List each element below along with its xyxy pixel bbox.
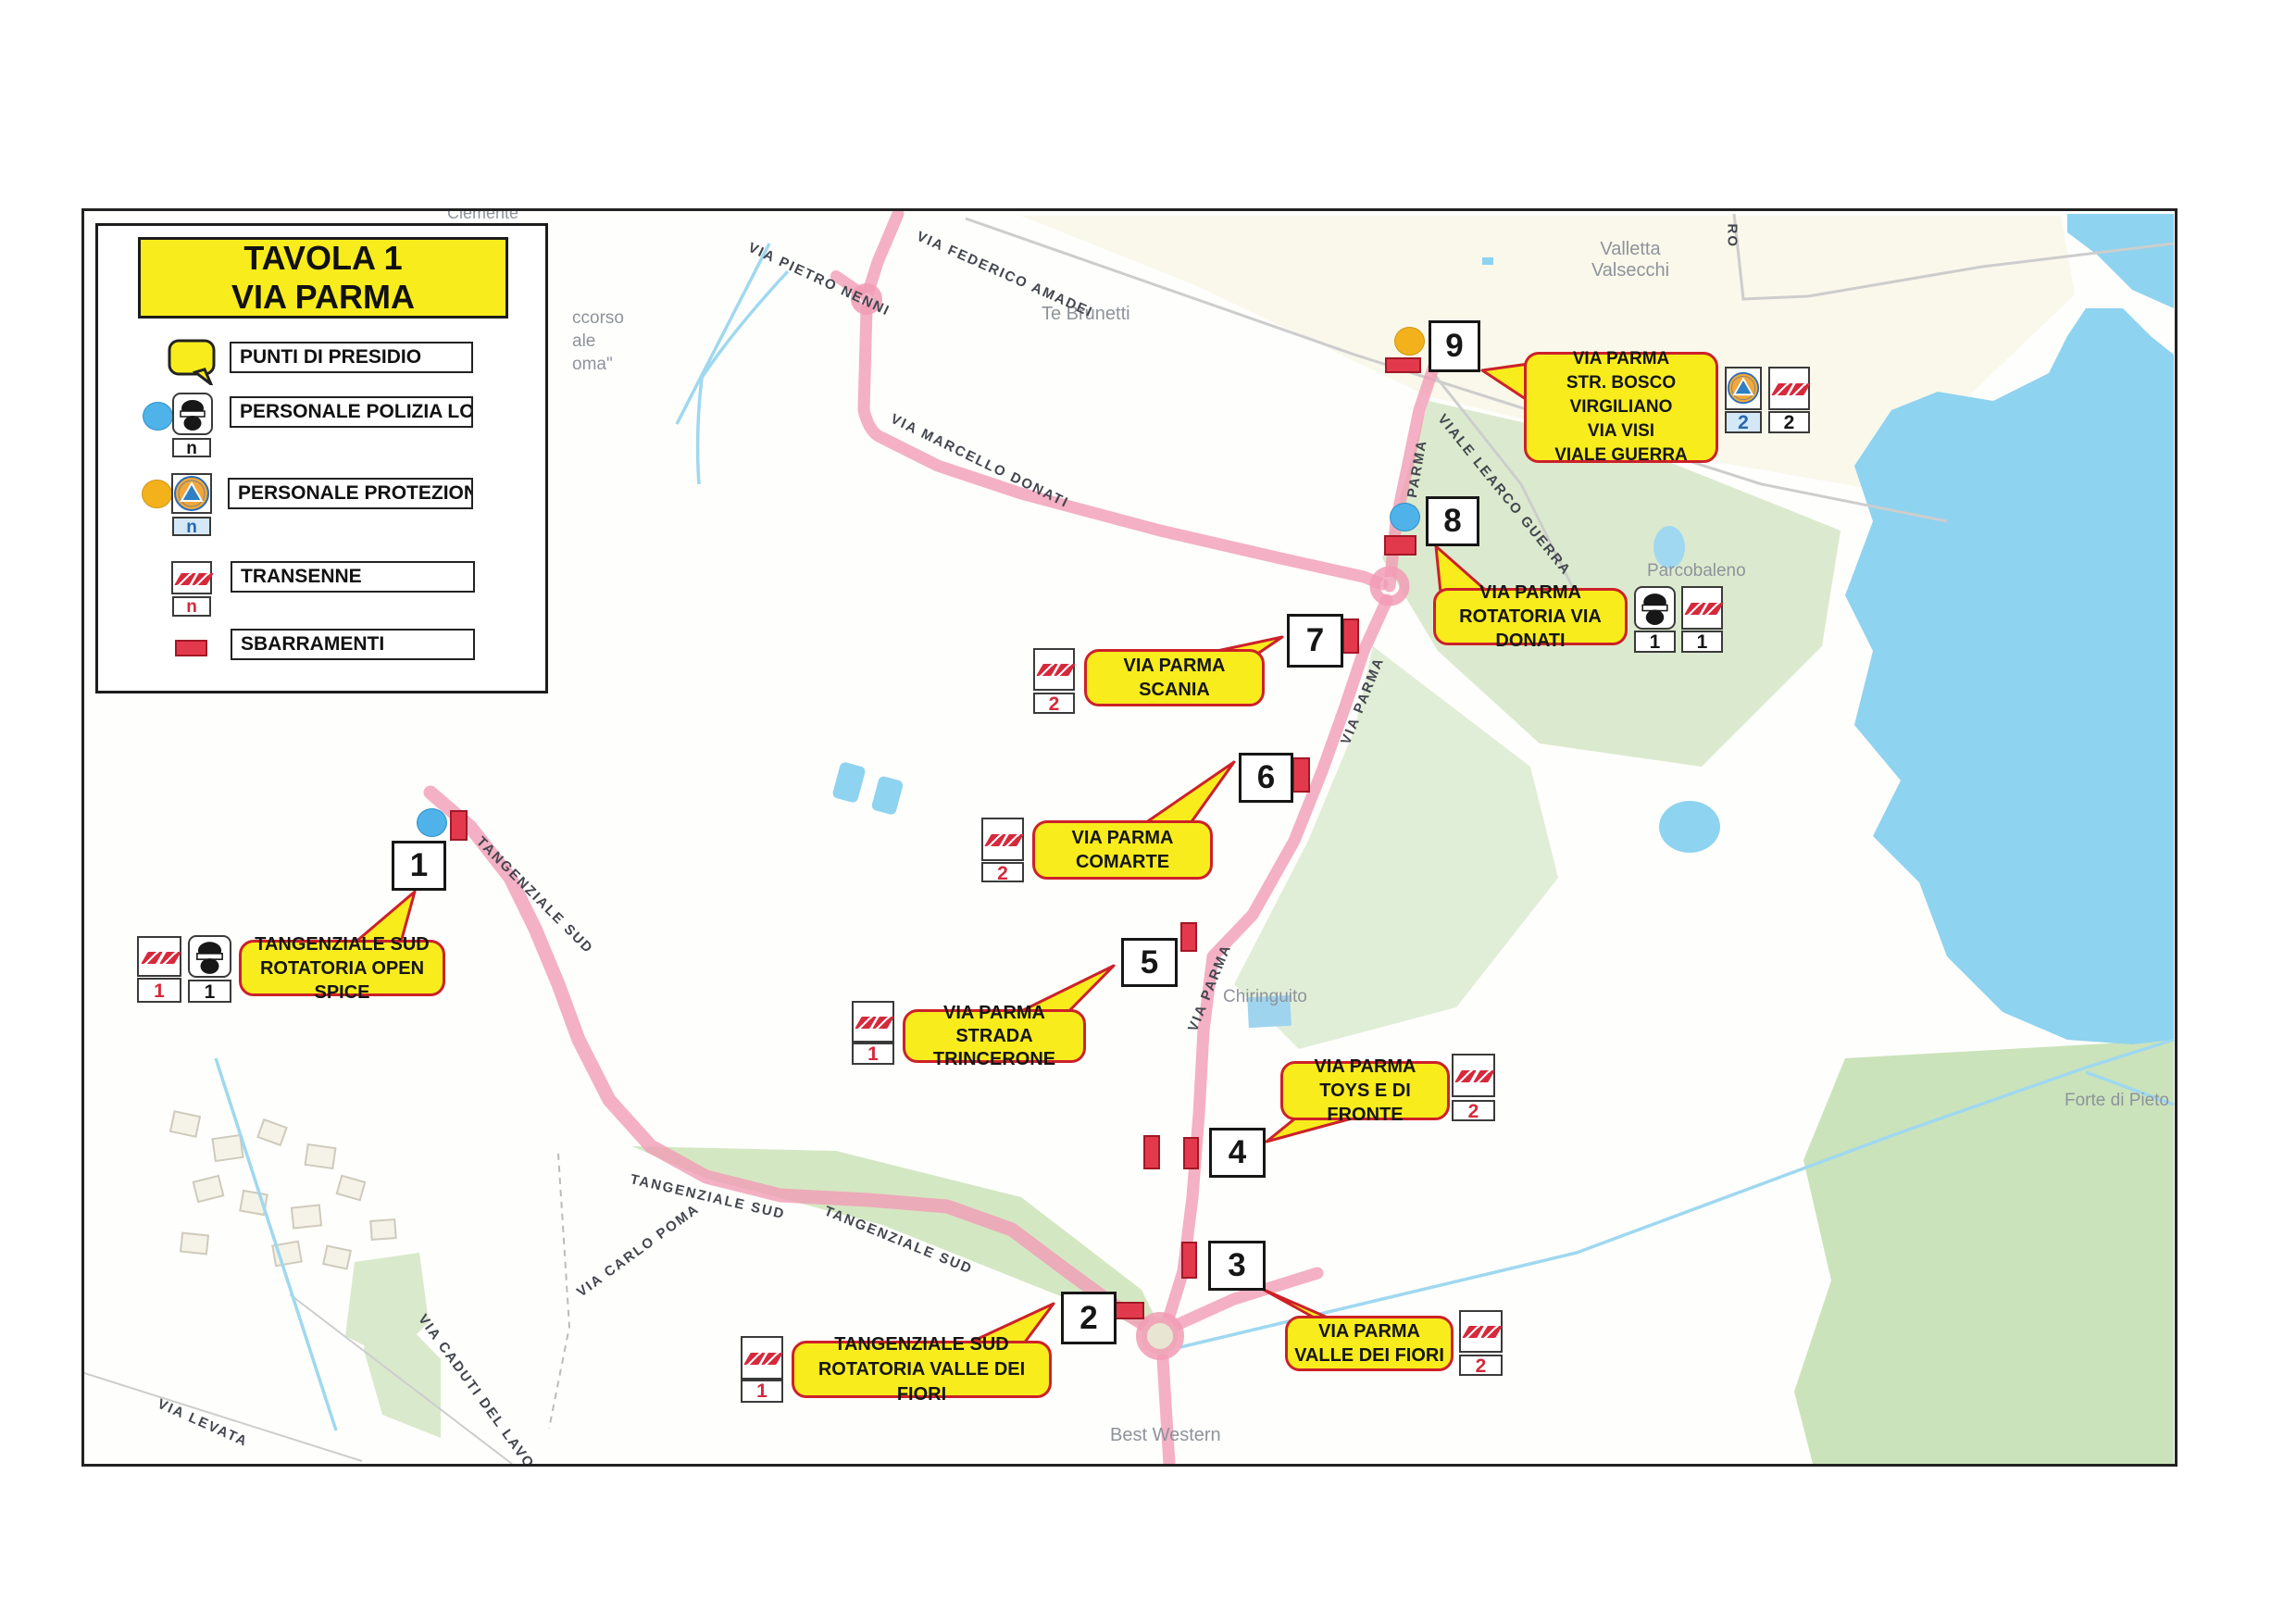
p6-callout: VIA PARMA COMARTE <box>1032 820 1213 880</box>
p7-transenne-icon <box>1033 648 1075 691</box>
p3-transenne-count: 2 <box>1459 1355 1503 1376</box>
p8-sbarramento-marker <box>1384 535 1416 556</box>
p1-callout: TANGENZIALE SUD ROTATORIA OPEN SPICE <box>239 940 445 996</box>
p7-line2: SCANIA <box>1092 678 1256 702</box>
pond-center-2 <box>871 775 905 816</box>
p8-polizia-marker <box>1390 503 1420 531</box>
p2-number-box: 2 <box>1061 1292 1117 1344</box>
place-label-best-western: Best Western <box>1110 1425 1221 1446</box>
p4-sbarramento-marker-1 <box>1143 1135 1160 1169</box>
boundary-dashed <box>549 1154 569 1429</box>
p4-number-box: 4 <box>1209 1128 1266 1178</box>
p1-polizia-marker <box>417 808 447 837</box>
p8-police-hat-icon <box>1634 586 1676 630</box>
p2-transenne-icon <box>741 1336 783 1380</box>
p8-line2: ROTATORIA VIA DONATI <box>1441 605 1619 653</box>
buildings-cluster <box>170 1111 396 1268</box>
p5-transenne-count: 1 <box>852 1043 894 1065</box>
p6-transenne-icon <box>981 818 1024 861</box>
p4-sbarramento-marker-2 <box>1183 1137 1199 1169</box>
p3-sbarramento-marker <box>1181 1242 1197 1279</box>
place-label-valletta-valsecchi: Valletta Valsecchi <box>1570 239 1691 281</box>
p4-line1: VIA PARMA <box>1289 1055 1441 1079</box>
p6-number-box: 6 <box>1239 753 1293 803</box>
p4-transenne-count: 2 <box>1452 1100 1495 1121</box>
p1-transenne-count: 1 <box>137 978 181 1003</box>
p1-police-hat-icon <box>188 935 231 978</box>
p7-sbarramento-marker <box>1342 618 1359 654</box>
p4-line2: TOYS E DI FRONTE <box>1289 1079 1441 1127</box>
p9-number-box: 9 <box>1429 320 1480 372</box>
partial-line-1: ccorso <box>572 306 624 330</box>
p7-line1: VIA PARMA <box>1092 654 1256 678</box>
p7-number-box: 7 <box>1287 614 1343 668</box>
protezione-count-placeholder: n <box>172 517 211 536</box>
p9-transenne-count: 2 <box>1768 411 1810 433</box>
place-label-chiringuito: Chiringuito <box>1223 987 1307 1007</box>
p8-number-box: 8 <box>1426 496 1479 546</box>
pond-small <box>1659 801 1720 853</box>
pond-center-1 <box>831 761 866 804</box>
legend-title-line2: VIA PARMA <box>231 278 415 317</box>
legend-label-sbarramenti: SBARRAMENTI <box>231 629 475 660</box>
p3-number-box: 3 <box>1208 1241 1266 1291</box>
p2-callout: TANGENZIALE SUD ROTATORIA VALLE DEI FIOR… <box>792 1341 1052 1398</box>
p1-sbarramento-marker <box>450 810 468 841</box>
p2-line1: TANGENZIALE SUD <box>800 1332 1043 1357</box>
p9-protezione-count: 2 <box>1725 411 1762 433</box>
valletta-line2: Valsecchi <box>1570 260 1691 281</box>
p5-sbarramento-marker <box>1180 922 1197 952</box>
pond-tiny <box>1482 257 1493 265</box>
p5-callout: VIA PARMA STRADA TRINCERONE <box>903 1009 1086 1063</box>
p6-transenne-count: 2 <box>981 862 1024 882</box>
p9-protezione-marker <box>1394 327 1425 356</box>
p4-callout: VIA PARMA TOYS E DI FRONTE <box>1280 1061 1450 1120</box>
partial-line-3: oma" <box>572 353 624 376</box>
p6-line2: COMARTE <box>1041 850 1204 874</box>
legend-title: TAVOLA 1 VIA PARMA <box>138 237 508 319</box>
p1-number-box: 1 <box>392 841 446 891</box>
legend: TAVOLA 1 VIA PARMA PUNTI DI PRESIDIO n P… <box>95 223 548 693</box>
sbarramento-icon <box>175 640 207 656</box>
legend-label-punti-di-presidio: PUNTI DI PRESIDIO <box>230 342 473 373</box>
p1-polizia-count: 1 <box>188 980 231 1003</box>
p7-transenne-count: 2 <box>1033 693 1075 714</box>
transenne-icon <box>171 561 212 594</box>
p1-transenne-icon <box>137 936 181 977</box>
water-corner <box>2067 214 2174 308</box>
p3-line2: VALLE DEI FIORI <box>1293 1343 1445 1368</box>
p9-transenne-icon <box>1768 367 1810 410</box>
polizia-count-placeholder: n <box>172 438 211 457</box>
legend-title-line1: TAVOLA 1 <box>243 239 402 278</box>
p2-line2: ROTATORIA VALLE DEI FIORI <box>800 1357 1043 1407</box>
p6-line1: VIA PARMA <box>1041 826 1204 850</box>
p9-line1: VIA PARMA <box>1532 347 1710 371</box>
legend-label-transenne: TRANSENNE <box>231 561 475 593</box>
p8-line1: VIA PARMA <box>1441 581 1619 605</box>
p5-transenne-icon <box>852 1001 894 1043</box>
p7-callout: VIA PARMA SCANIA <box>1084 649 1265 706</box>
highlighted-roads <box>430 214 1447 1464</box>
legend-label-protezione: PERSONALE PROTEZIONE CIVILE <box>228 478 473 509</box>
p9-line3: VIA VISI <box>1532 419 1710 443</box>
protezione-civile-logo-icon <box>171 473 212 514</box>
police-hat-icon <box>172 393 213 435</box>
presidio-bubble-icon <box>168 339 218 385</box>
place-label-parcobaleno: Parcobaleno <box>1647 561 1746 581</box>
place-label-forte-di-pieto: Forte di Pieto <box>2065 1091 2169 1111</box>
legend-label-polizia: PERSONALE POLIZIA LOCALE <box>230 396 473 428</box>
p3-callout: VIA PARMA VALLE DEI FIORI <box>1285 1316 1454 1371</box>
transenne-count-placeholder: n <box>172 596 211 617</box>
p2-transenne-count: 1 <box>741 1380 783 1403</box>
map-canvas: TAVOLA 1 VIA PARMA PUNTI DI PRESIDIO n P… <box>81 208 2177 1467</box>
place-label-clemente: Clemente <box>447 208 518 223</box>
p3-line1: VIA PARMA <box>1293 1319 1445 1343</box>
p9-callout: VIA PARMA STR. BOSCO VIRGILIANO VIA VISI… <box>1524 352 1718 463</box>
lake <box>1845 308 2174 1044</box>
p9-sbarramento-marker <box>1385 357 1421 373</box>
p1-line2: ROTATORIA OPEN SPICE <box>247 956 437 1005</box>
p4-transenne-icon <box>1452 1054 1495 1097</box>
polizia-circle-icon <box>143 402 173 431</box>
p8-polizia-count: 1 <box>1634 631 1676 653</box>
p6-sbarramento-marker <box>1292 757 1310 793</box>
p9-line2: STR. BOSCO VIRGILIANO <box>1532 371 1710 419</box>
p3-transenne-icon <box>1459 1310 1503 1353</box>
p8-transenne-icon <box>1681 586 1723 630</box>
street-label-partial-ro: RO <box>1725 224 1741 249</box>
p9-line4: VIALE GUERRA <box>1532 443 1710 468</box>
p8-transenne-count: 1 <box>1681 631 1723 653</box>
p5-number-box: 5 <box>1121 938 1178 987</box>
protezione-circle-icon <box>142 480 172 508</box>
p5-line1: VIA PARMA <box>911 1002 1078 1025</box>
p2-sbarramento-marker <box>1114 1302 1144 1319</box>
p5-line2: STRADA TRINCERONE <box>911 1025 1078 1071</box>
partial-text-block: ccorso ale oma" <box>572 306 624 376</box>
p1-line1: TANGENZIALE SUD <box>247 932 437 956</box>
p9-protezione-civile-logo-icon <box>1725 367 1762 410</box>
valletta-line1: Valletta <box>1570 239 1691 260</box>
partial-line-2: ale <box>572 330 624 353</box>
p8-callout: VIA PARMA ROTATORIA VIA DONATI <box>1433 588 1628 645</box>
